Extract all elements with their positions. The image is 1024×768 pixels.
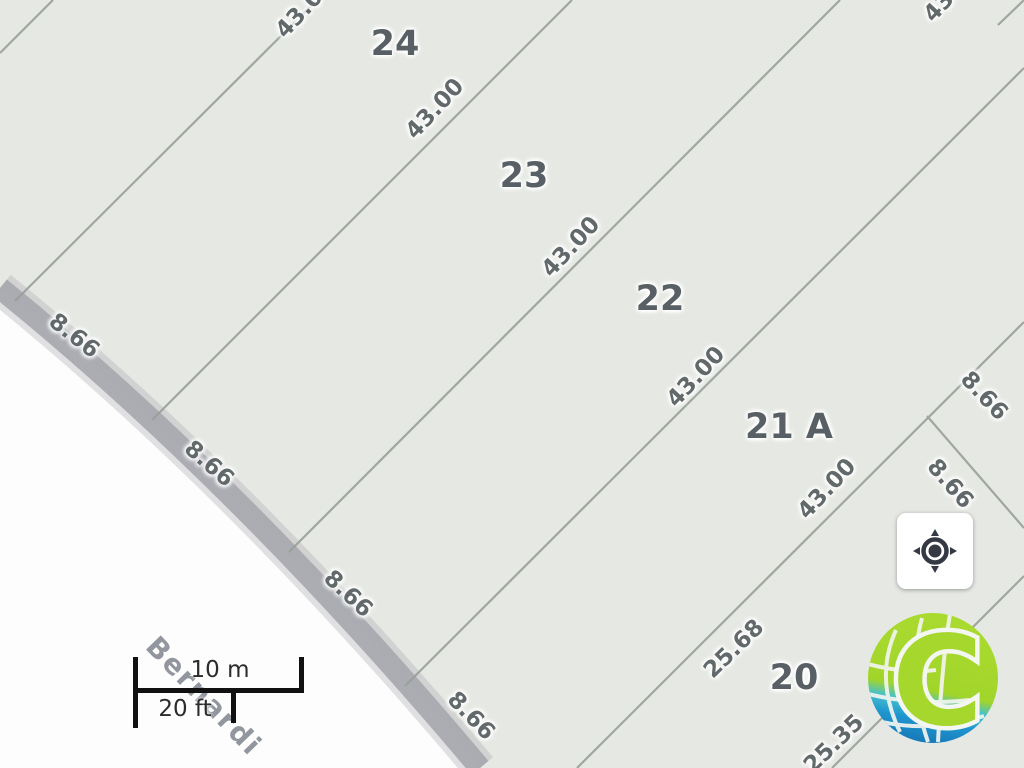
globe-logo-icon: C xyxy=(866,612,1002,746)
map-provider-logo[interactable]: C xyxy=(866,612,1002,746)
parcel-boundary-line xyxy=(289,0,840,552)
parcel-boundary-line xyxy=(0,0,53,53)
parcel-boundary-line xyxy=(405,68,1024,686)
scale-bar-tick xyxy=(299,657,304,693)
parcel-label-21a: 21 A xyxy=(745,407,833,447)
locate-me-button[interactable] xyxy=(897,513,973,589)
scale-bar-metric-label: 10 m xyxy=(160,657,280,683)
scale-bar: 10 m 20 ft xyxy=(130,650,315,735)
parcel-boundary-line xyxy=(998,0,1024,25)
map-canvas[interactable]: 24 23 22 21 A 20 43.00 43.00 43.00 43.00… xyxy=(0,0,1024,768)
logo-letter: C xyxy=(892,612,983,746)
parcel-boundary-line xyxy=(152,0,572,420)
scale-bar-tick xyxy=(231,688,236,723)
my-location-icon xyxy=(912,528,958,574)
parcel-label-23: 23 xyxy=(500,156,549,196)
parcel-label-20: 20 xyxy=(770,658,819,698)
parcel-label-24: 24 xyxy=(371,24,420,64)
parcel-boundary-line xyxy=(15,0,317,301)
scale-bar-line xyxy=(133,688,304,693)
parcel-label-22: 22 xyxy=(636,279,685,319)
scale-bar-imperial-label: 20 ft xyxy=(145,696,225,722)
